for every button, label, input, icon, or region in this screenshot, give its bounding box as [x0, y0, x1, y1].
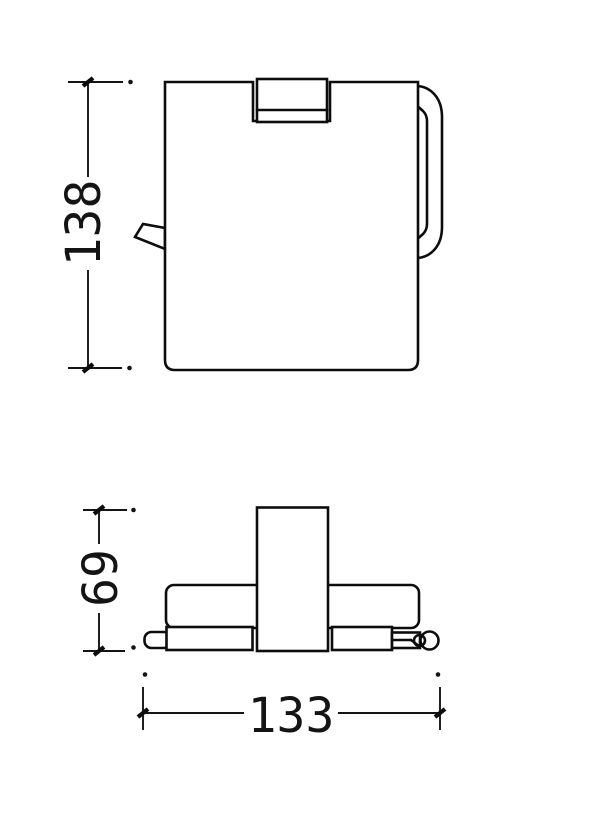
roll-bar-end-inner	[419, 107, 428, 238]
release-lever	[135, 224, 165, 249]
front-view	[135, 79, 442, 370]
technical-drawing: 138 69 133	[0, 0, 600, 815]
dimension-width: 133	[138, 672, 445, 744]
plan-view	[145, 508, 439, 652]
ext-dot-bottom	[127, 366, 132, 371]
dimension-depth-label: 69	[73, 549, 129, 607]
ext-dot-top	[131, 508, 136, 513]
roller-right	[332, 627, 392, 650]
dimension-height: 138	[56, 78, 133, 372]
spindle-knob	[421, 632, 439, 650]
dimension-width-label: 133	[248, 688, 335, 744]
roller-left	[167, 627, 253, 650]
roll-bar-end-outer	[418, 86, 442, 258]
ext-dot-top	[128, 80, 133, 85]
front-body	[165, 82, 418, 370]
ext-dot-left	[143, 672, 148, 677]
drawing-canvas: 138 69 133	[0, 0, 600, 815]
ext-dot-bottom	[131, 645, 136, 650]
dimension-depth: 69	[73, 506, 136, 655]
mount-bracket	[257, 79, 327, 122]
dimension-height-label: 138	[56, 180, 112, 267]
mount-post	[257, 508, 328, 652]
ext-dot-right	[436, 672, 441, 677]
